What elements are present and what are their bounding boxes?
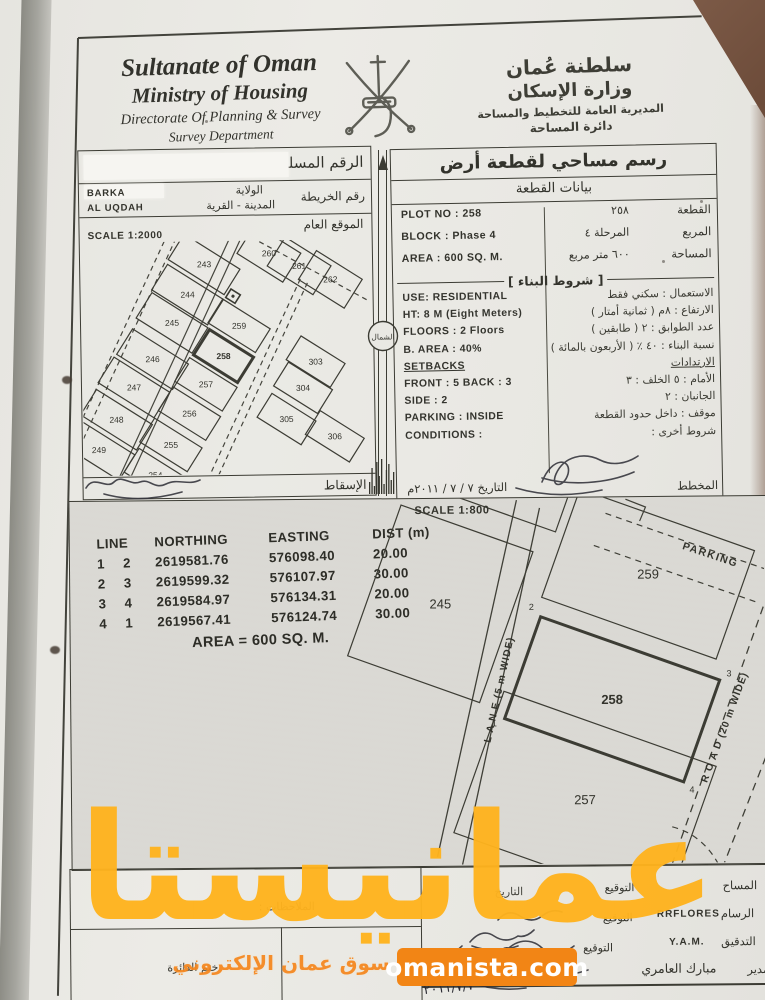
site-map-scale-label: SCALE 1:2000 — [88, 230, 163, 242]
page-edge-shadow — [750, 105, 765, 535]
plot-number: 304 — [296, 383, 311, 393]
plot-number: 244 — [180, 289, 195, 299]
plot-number: 259 — [232, 321, 247, 331]
plot-number: 262 — [323, 274, 338, 284]
wilayat-value: BARKA — [87, 188, 125, 200]
condition-ar: شروط أخرى : — [651, 423, 716, 437]
building-conditions-rows: USE: RESIDENTIALالاستعمال : سكني فقطHT: … — [393, 286, 721, 447]
condition-ar: الارتفاع : ٨م ( ثمانية أمتار ) — [591, 303, 714, 318]
identity-ar-label: المساحة — [671, 246, 712, 261]
plot-number: 305 — [279, 414, 294, 424]
conditions-header-text: [ شروط البناء ] — [508, 272, 604, 289]
north-arrow-tip — [378, 155, 388, 170]
road-label: R O A D (20 m WIDE) — [699, 671, 750, 785]
parking-label: PARKING — [681, 540, 740, 570]
plot-number: 245 — [165, 318, 180, 328]
watermark-domain-badge: omanista.com — [397, 948, 577, 986]
draftsman-label: الرسام — [721, 906, 754, 920]
plot-number: 255 — [164, 440, 179, 450]
condition-en: SIDE : 2 — [404, 395, 447, 407]
serial-location-box: الرقم المسلسل رقم الخريطة الولاية المدين… — [77, 146, 376, 501]
condition-en: PARKING : INSIDE — [405, 411, 504, 424]
condition-ar: الجانبان : ٢ — [665, 389, 716, 403]
condition-en: FLOORS : 2 Floors — [403, 325, 505, 338]
city-village-label: المدينة - القرية — [206, 198, 275, 212]
plot-number: 246 — [145, 354, 160, 364]
check-label: التدقيق — [721, 934, 756, 948]
header-arabic-block: سلطنة عُمان وزارة الإسكان المديرية العام… — [454, 50, 687, 138]
plot-number: 260 — [262, 248, 277, 258]
plot-number: 303 — [308, 356, 323, 366]
condition-en: USE: RESIDENTIAL — [402, 291, 507, 304]
identity-ar-label: المربع — [682, 224, 711, 239]
corner-number: 1 — [492, 718, 497, 728]
condition-ar: عدد الطوابق : ٢ ( طابقين ) — [591, 320, 714, 335]
planner-date-note: التاريخ ٧ / ٧ / ٢٠١١م — [407, 480, 507, 496]
condition-en: HT: 8 M (Eight Meters) — [403, 308, 523, 321]
plot-data-panel: رسم مساحي لقطعة أرض بيانات القطعة PLOT N… — [390, 143, 724, 503]
lane-label: L A N E (5 m WIDE) — [483, 636, 517, 744]
condition-ar: الارتدادات — [671, 355, 715, 369]
header-english-block: Sultanate of Oman Ministry of Housing Di… — [89, 48, 352, 148]
identity-en: PLOT NO : 258 — [401, 207, 482, 221]
identity-ar-label: القطعة — [677, 202, 711, 217]
corner-number: 2 — [529, 602, 534, 612]
condition-en: B. AREA : 40% — [403, 343, 482, 356]
identity-ar-value: المرحلة ٤ — [479, 226, 629, 242]
panel-subtitle: بيانات القطعة — [391, 177, 716, 199]
general-location-label: الموقع العام — [303, 217, 363, 232]
director-label: المدير — [747, 962, 765, 976]
condition-ar: الأمام : ٥ الخلف : ٣ — [626, 372, 715, 387]
plot-number: 306 — [328, 431, 343, 441]
site-map-plots: 2432442452462472482492602612622592582572… — [81, 239, 366, 476]
plot-number: 245 — [429, 596, 451, 611]
plot-number: 247 — [127, 382, 142, 392]
scanned-survey-document: Sultanate of Oman Ministry of Housing Di… — [0, 0, 765, 1000]
condition-en: SETBACKS — [404, 361, 465, 373]
plot-number: 256 — [182, 408, 197, 418]
north-label: الشمال — [371, 333, 394, 342]
projection-label: الإسقاط — [324, 477, 367, 493]
plot-number: 243 — [197, 259, 212, 269]
plot-number: 248 — [109, 415, 124, 425]
panel-title: رسم مساحي لقطعة أرض — [391, 148, 716, 175]
corner-number: 3 — [726, 668, 731, 678]
condition-ar: نسبة البناء : ٤٠ ٪ ( الأربعون بالمائة ) — [551, 338, 715, 354]
oman-emblem-icon — [336, 49, 421, 142]
surveyor-label: المساح — [723, 878, 758, 892]
plot-number: 249 — [92, 445, 107, 455]
punch-hole — [50, 646, 60, 654]
plot-number: 258 — [601, 692, 623, 707]
plot-identity-rows: PLOT NO : 258٢٥٨القطعةBLOCK : Phase 4الم… — [392, 200, 718, 274]
punch-hole — [62, 376, 72, 384]
wilayat-label: الولاية — [235, 183, 263, 196]
condition-ar: الاستعمال : سكني فقط — [607, 286, 713, 301]
identity-ar-value: ٦٠٠ متر مربع — [480, 248, 630, 264]
identity-ar-value: ٢٥٨ — [479, 204, 629, 220]
plot-outline — [413, 496, 585, 533]
plot-number: 258 — [216, 351, 231, 361]
barcode — [369, 459, 394, 494]
whiteout-serial — [83, 152, 288, 180]
plot-number: 259 — [637, 566, 659, 581]
condition-ar: موقف : داخل حدود القطعة — [594, 406, 716, 421]
condition-en: FRONT : 5 BACK : 3 — [404, 377, 512, 390]
site-plan-map: 2432442452462472482492602612622592582572… — [81, 239, 373, 476]
watermark-tagline: سوق عمان الإلكتروني — [150, 951, 412, 975]
planner-label: المخطط — [677, 478, 718, 493]
map-number-label: رقم الخريطة — [301, 189, 366, 204]
condition-en: CONDITIONS : — [405, 429, 483, 441]
mosque-marker — [226, 289, 241, 303]
plot-number: 257 — [199, 379, 214, 389]
village-value: AL UQDAH — [87, 202, 144, 214]
